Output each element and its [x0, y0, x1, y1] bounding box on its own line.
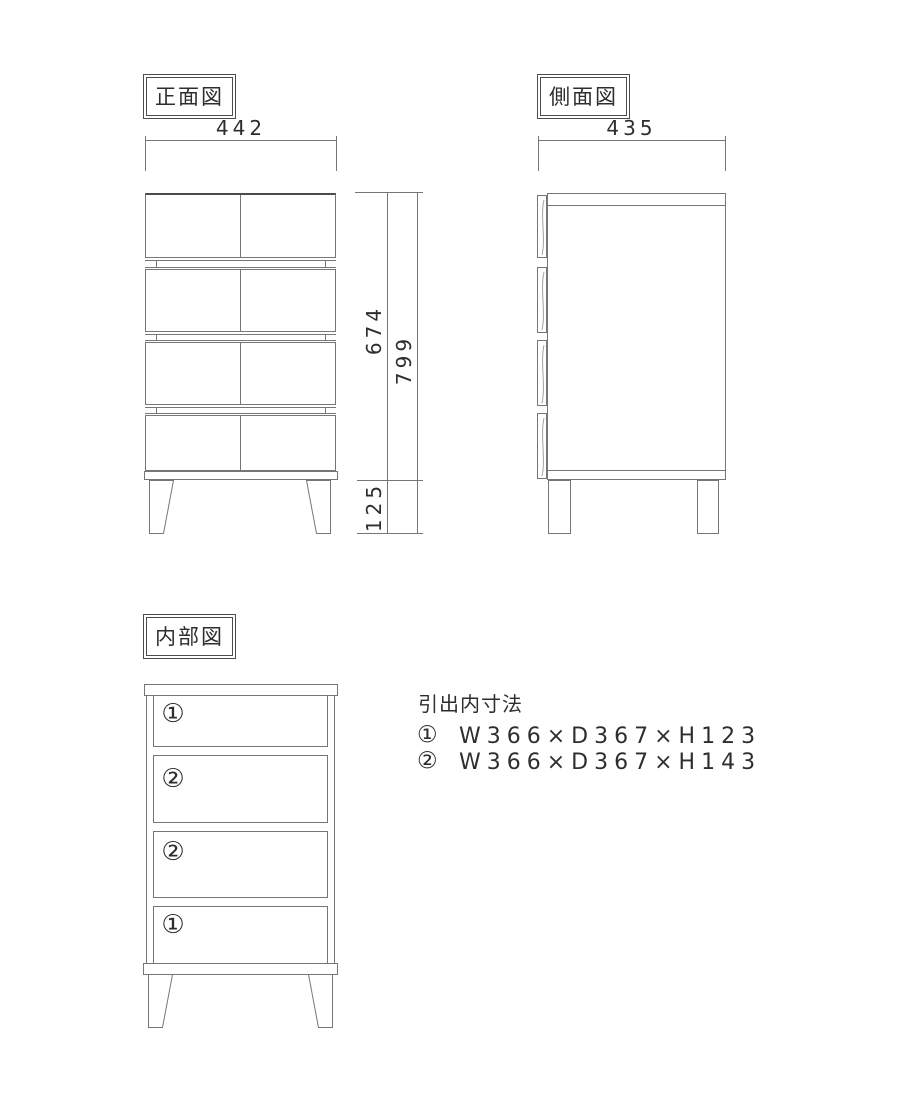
compartment-label-4: ①: [160, 912, 186, 938]
side-depth-dim-ext-left: [538, 136, 539, 171]
side-drawer-front-2: [537, 267, 547, 333]
front-drawer-gap-3: [145, 407, 336, 414]
front-width-dim-label: 442: [145, 116, 337, 140]
side-view-title-box: 側面図: [537, 74, 630, 119]
side-drawer-front-3: [537, 340, 547, 406]
front-height-ext-bottom: [357, 533, 423, 534]
front-drawer-split-2: [240, 269, 241, 332]
internal-right-wall: [327, 695, 335, 964]
front-base-strip: [144, 471, 338, 480]
internal-divider-1: [153, 746, 328, 756]
drawer-dim-item1-mark: ①: [417, 724, 438, 747]
front-height-dim-line-inner: [387, 192, 388, 533]
front-width-dim-ext-right: [336, 136, 337, 171]
internal-divider-3: [153, 897, 328, 907]
front-width-dim-ext-left: [145, 136, 146, 171]
side-drawer-bevel-4: [538, 414, 548, 480]
front-gap1-tick-left: [156, 260, 157, 268]
side-drawer-bevel-1: [538, 196, 548, 259]
side-leg-left: [548, 480, 571, 534]
internal-view-title-box: 内部図: [143, 614, 236, 659]
front-drawer-gap-2: [145, 334, 336, 341]
internal-view-title: 内部図: [146, 617, 233, 656]
side-view-title: 側面図: [540, 77, 627, 116]
front-body-height-label: 674: [362, 305, 386, 355]
drawer-dim-item2-text: W366×D367×H143: [459, 750, 761, 775]
front-height-ext-mid: [357, 480, 423, 481]
front-gap1-tick-right: [325, 260, 326, 268]
side-drawer-bevel-3: [538, 341, 548, 407]
side-body: [547, 193, 726, 480]
side-top-panel-line: [547, 205, 726, 206]
internal-top-panel: [144, 684, 338, 696]
drawer-dim-item1-text: W366×D367×H123: [459, 724, 761, 749]
side-depth-dim-label: 435: [538, 116, 725, 140]
side-drawer-bevel-2: [538, 268, 548, 334]
front-drawer-split-3: [240, 342, 241, 405]
compartment-label-1: ①: [160, 701, 186, 727]
drawer-dimensions-heading: 引出内寸法: [418, 688, 523, 717]
internal-divider-2: [153, 822, 328, 832]
drawer-dim-item2-mark: ②: [417, 750, 438, 773]
front-leg-height-label: 125: [362, 482, 386, 532]
front-gap2-tick-left: [156, 334, 157, 341]
front-leg-right: [306, 480, 331, 534]
side-drawer-front-4: [537, 413, 547, 479]
side-depth-dim-ext-right: [725, 136, 726, 171]
side-depth-dim-line: [538, 140, 725, 141]
front-height-ext-top: [355, 192, 423, 193]
front-gap3-tick-left: [156, 407, 157, 414]
front-drawer-split-1: [240, 195, 241, 258]
side-leg-right: [697, 480, 719, 534]
front-leg-left: [149, 480, 174, 534]
front-view-title-box: 正面図: [143, 74, 236, 119]
side-drawer-front-1: [537, 195, 547, 258]
front-total-height-label: 799: [392, 335, 416, 385]
front-view-title: 正面図: [146, 77, 233, 116]
front-drawer-split-4: [240, 415, 241, 471]
compartment-label-2: ②: [160, 766, 186, 792]
front-height-dim-line-outer: [417, 192, 418, 533]
front-gap3-tick-right: [325, 407, 326, 414]
side-bottom-panel-line: [547, 470, 726, 471]
compartment-label-3: ②: [160, 839, 186, 865]
technical-drawing-canvas: 正面図 442: [0, 0, 900, 1100]
internal-leg-right: [308, 974, 333, 1028]
front-gap2-tick-right: [325, 334, 326, 341]
internal-leg-left: [148, 974, 173, 1028]
front-width-dim-line: [145, 140, 337, 141]
front-drawer-gap-1: [145, 260, 336, 268]
